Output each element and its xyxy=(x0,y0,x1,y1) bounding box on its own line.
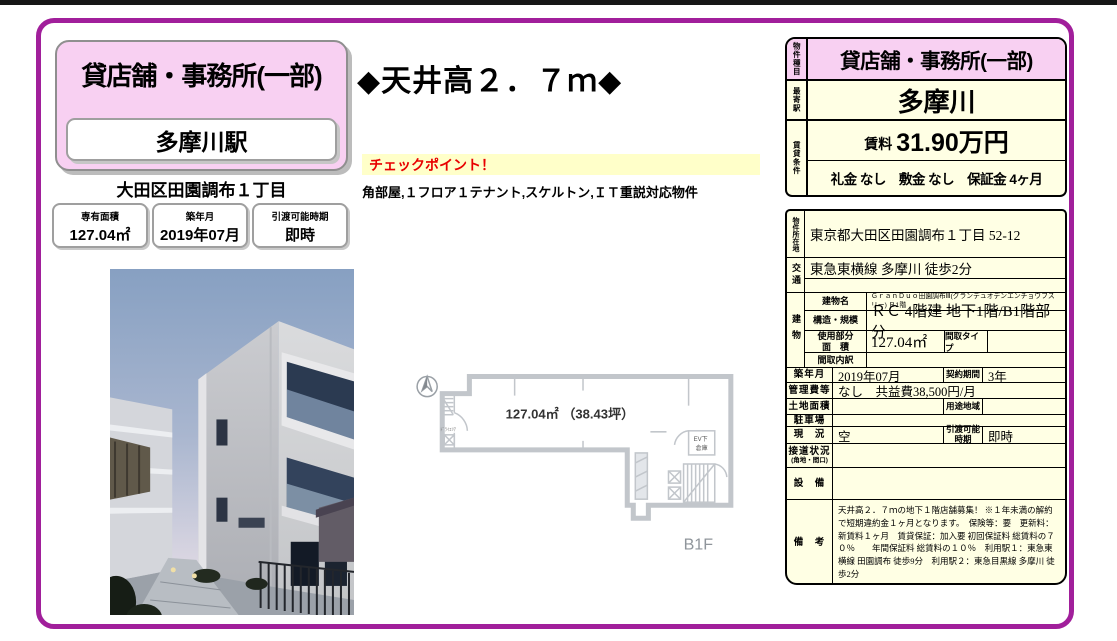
checkpoint-bar: チェックポイント！ xyxy=(362,154,760,175)
info-value: 127.04㎡ xyxy=(54,224,146,245)
detail-table: 物件所在地 東京都大田区田園調布１丁目 52-12 交通 東急東横線 多摩川 徒… xyxy=(785,209,1067,585)
top-black-strip xyxy=(0,0,1117,5)
info-label: 引渡可能時期 xyxy=(254,209,346,223)
summary-row-type: 物件種目 貸店舗・事務所(一部) xyxy=(787,39,1065,81)
rent-label: 賃料 xyxy=(864,134,892,154)
flyer-sheet: 貸店舗・事務所(一部) 多摩川駅 大田区田園調布１丁目 専有面積 127.04㎡… xyxy=(36,18,1074,629)
property-type-badge: 貸店舗・事務所(一部) 多摩川駅 xyxy=(55,40,348,171)
terms-label: 賃貸条件 xyxy=(793,141,801,175)
summary-row-terms: 賃貸条件 賃料 31.90万円 礼金 なし 敷金 なし 保証金 4ヶ月 xyxy=(787,121,1065,195)
location-value: 東京都大田区田園調布１丁目 52-12 xyxy=(805,211,1065,257)
row-management-fee: 管理費等 なし 共益費38,500円/月 xyxy=(787,383,1065,399)
location-label-cell: 物件所在地 xyxy=(787,211,805,257)
station-label: 最寄駅 xyxy=(793,87,801,113)
info-value: 即時 xyxy=(254,224,346,245)
row-parking: 駐車場 xyxy=(787,415,1065,427)
row-remarks: 備 考 天井高２．７ｍの地下１階店舗募集！ ※１年未満の解約で短期違約金１ヶ月と… xyxy=(787,500,1065,585)
summary-table: 物件種目 貸店舗・事務所(一部) 最寄駅 多摩川 賃貸条件 賃料 31.90万円… xyxy=(785,37,1067,197)
building-label-cell: 建物 xyxy=(787,293,805,367)
floorplan-ev-label: EV下 xyxy=(694,436,708,443)
floorplan-drawing: 127.04㎡ （38.43坪） EV下 倉庫 ﾄﾞﾗｲｴﾘｱ B1F xyxy=(399,360,761,572)
info-label: 築年月 xyxy=(154,209,246,223)
rent-value: 31.90万円 xyxy=(896,123,1009,159)
checkpoint-body: 角部屋,１フロア１テナント,スケルトン,ＩＴ重説対応物件 xyxy=(362,182,698,201)
info-box-built: 築年月 2019年07月 xyxy=(152,203,248,248)
station-value: 多摩川 xyxy=(808,81,1065,119)
floorplan: 127.04㎡ （38.43坪） EV下 倉庫 ﾄﾞﾗｲｴﾘｱ B1F xyxy=(399,360,761,572)
row-access: 交通 東急東横線 多摩川 徒歩2分 xyxy=(787,258,1065,293)
row-land-area: 土地面積 用途地域 xyxy=(787,399,1065,415)
access-value: 東急東横線 多摩川 徒歩2分 xyxy=(805,258,1065,279)
deposit-terms: 礼金 なし 敷金 なし 保証金 4ヶ月 xyxy=(808,161,1065,195)
summary-row-station: 最寄駅 多摩川 xyxy=(787,81,1065,121)
rent-cell: 賃料 31.90万円 xyxy=(808,121,1065,161)
floorplan-area-label: 127.04㎡ （38.43坪） xyxy=(506,407,635,422)
info-box-row: 専有面積 127.04㎡ 築年月 2019年07月 引渡可能時期 即時 xyxy=(52,203,348,248)
summary-label-cell: 賃貸条件 xyxy=(787,121,808,195)
row-location: 物件所在地 東京都大田区田園調布１丁目 52-12 xyxy=(787,211,1065,258)
summary-label-cell: 物件種目 xyxy=(787,39,808,79)
structure-value: ＲＣ 4階建 地下1階/B1階部分 xyxy=(867,311,1065,330)
address-text: 大田区田園調布１丁目 xyxy=(55,176,348,201)
floorplan-storage-label: 倉庫 xyxy=(696,444,708,452)
station-badge: 多摩川駅 xyxy=(66,118,337,161)
access-label-cell: 交通 xyxy=(787,258,805,292)
summary-label-cell: 最寄駅 xyxy=(787,81,808,119)
building-photo-art xyxy=(110,269,354,615)
structure-row: 構造・規模 ＲＣ 4階建 地下1階/B1階部分 xyxy=(805,311,1065,331)
info-label: 専有面積 xyxy=(54,209,146,223)
madori-type-label: 間取タイプ xyxy=(945,331,988,352)
ceiling-height-headline: ◆天井高２．７ｍ◆ xyxy=(357,56,622,100)
row-facilities: 設 備 xyxy=(787,468,1065,500)
row-building: 建物 建物名 ＧｒａｎＤｕｏ田園調布Ⅲ(グランデュオデンエンチョウフスリー) Ｂ… xyxy=(787,293,1065,368)
checkpoint-title: チェックポイント！ xyxy=(369,155,495,175)
property-type-label: 物件種目 xyxy=(793,42,801,76)
info-value: 2019年07月 xyxy=(154,224,246,245)
info-box-area: 専有面積 127.04㎡ xyxy=(52,203,148,248)
property-type-value: 貸店舗・事務所(一部) xyxy=(808,39,1065,79)
remarks-text: 天井高２．７ｍの地下１階店舗募集！ ※１年未満の解約で短期違約金１ヶ月となります… xyxy=(833,500,1065,585)
used-area-row: 使用部分 面 積 127.04㎡ 間取タイプ xyxy=(805,331,1065,353)
floorplan-dryarea-label: ﾄﾞﾗｲｴﾘｱ xyxy=(440,426,457,432)
info-box-handover: 引渡可能時期 即時 xyxy=(252,203,348,248)
row-road-access: 接道状況 (角地・間口) xyxy=(787,444,1065,468)
row-current-state: 現 況 空 引渡可能時期 即時 xyxy=(787,427,1065,444)
floorplan-floor-label: B1F xyxy=(684,535,714,553)
madori-type-value xyxy=(988,331,1065,352)
building-photo xyxy=(110,269,354,615)
property-type-text: 貸店舗・事務所(一部) xyxy=(57,56,346,93)
station-text: 多摩川駅 xyxy=(156,123,248,157)
used-area-value: 127.04㎡ xyxy=(867,331,945,352)
terms-column: 賃料 31.90万円 礼金 なし 敷金 なし 保証金 4ヶ月 xyxy=(808,121,1065,195)
access-blank xyxy=(805,279,1065,292)
